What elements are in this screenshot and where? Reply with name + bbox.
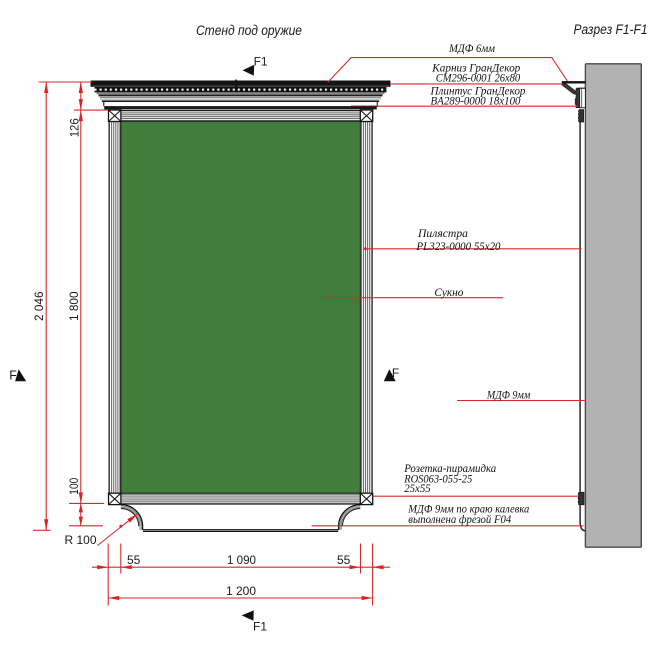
svg-text:F: F: [9, 368, 17, 382]
svg-text:Стенд под оружие: Стенд под оружие: [196, 23, 302, 38]
svg-text:100: 100: [67, 477, 81, 494]
svg-text:R 100: R 100: [65, 533, 97, 547]
svg-text:МДФ 9мм: МДФ 9мм: [486, 388, 531, 402]
svg-text:55: 55: [127, 553, 141, 567]
svg-text:Разрез F1-F1: Разрез F1-F1: [574, 22, 648, 37]
svg-text:F1: F1: [254, 54, 268, 68]
svg-text:МДФ 6мм: МДФ 6мм: [448, 41, 495, 55]
svg-text:Пилястра: Пилястра: [417, 226, 468, 240]
svg-text:выполнена фрезой F04: выполнена фрезой F04: [408, 512, 511, 526]
svg-text:F1: F1: [253, 620, 267, 634]
svg-text:1 800: 1 800: [67, 291, 81, 321]
svg-text:1 090: 1 090: [227, 553, 256, 567]
svg-text:BA289-0000 18x100: BA289-0000 18x100: [431, 94, 521, 108]
svg-text:1 200: 1 200: [226, 584, 256, 598]
svg-text:F: F: [392, 366, 399, 380]
svg-text:2 046: 2 046: [32, 291, 46, 321]
svg-text:PL323-0000 55x20: PL323-0000 55x20: [416, 239, 501, 253]
svg-text:25x55: 25x55: [404, 481, 431, 495]
svg-text:55: 55: [337, 553, 351, 567]
svg-text:Сукно: Сукно: [434, 285, 463, 299]
svg-text:126: 126: [68, 118, 82, 137]
